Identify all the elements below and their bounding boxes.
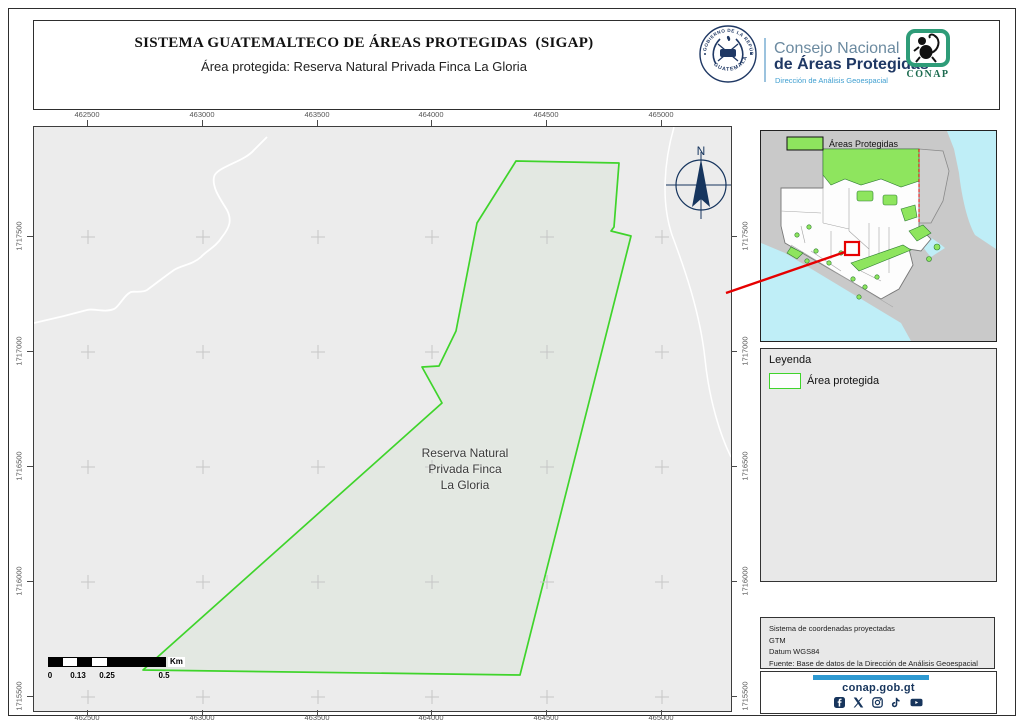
inset-legend-swatch bbox=[787, 137, 823, 150]
y-axis-label: 1717500 bbox=[15, 221, 24, 250]
y-axis-label: 1717500 bbox=[741, 221, 750, 250]
youtube-icon[interactable] bbox=[910, 697, 923, 708]
north-arrow-icon: N bbox=[666, 144, 731, 219]
y-axis-label: 1716500 bbox=[741, 451, 750, 480]
social-icons-row bbox=[761, 697, 996, 708]
conap-logo-icon: CONAP bbox=[903, 29, 953, 81]
x-axis-label: 464000 bbox=[418, 110, 443, 119]
scale-bar: Km 0 0.13 0.25 0.5 bbox=[48, 657, 208, 685]
x-axis-label: 462500 bbox=[74, 713, 99, 722]
main-map[interactable]: N Reserva Natural Privada Finca La Glori… bbox=[33, 126, 732, 712]
y-axis-label: 1716500 bbox=[15, 451, 24, 480]
meta-line: Datum WGS84 bbox=[769, 646, 986, 658]
x-axis-label: 464500 bbox=[533, 110, 558, 119]
x-axis-label: 463500 bbox=[304, 110, 329, 119]
legend-title: Leyenda bbox=[769, 354, 811, 366]
footer-panel: conap.gob.gt bbox=[760, 671, 997, 714]
x-axis-label: 463000 bbox=[189, 110, 214, 119]
tiktok-icon[interactable] bbox=[891, 697, 902, 708]
x-axis-label: 464000 bbox=[418, 713, 443, 722]
page-subtitle: Área protegida: Reserva Natural Privada … bbox=[34, 59, 694, 74]
inset-legend-label: Áreas Protegidas bbox=[829, 139, 899, 149]
x-axis-label: 465000 bbox=[648, 110, 673, 119]
scale-label-013: 0.13 bbox=[70, 671, 86, 680]
meta-line: Sistema de coordenadas proyectadas bbox=[769, 623, 986, 635]
x-axis-label: 463500 bbox=[304, 713, 329, 722]
logo-separator bbox=[764, 38, 766, 82]
scale-label-05: 0.5 bbox=[158, 671, 169, 680]
header: SISTEMA GUATEMALTECO DE ÁREAS PROTEGIDAS… bbox=[33, 20, 1000, 110]
map-canvas: N bbox=[34, 127, 731, 711]
x-axis-label: 465000 bbox=[648, 713, 673, 722]
meta-line: Fuente: Base de datos de la Dirección de… bbox=[769, 658, 986, 670]
y-axis-label: 1715500 bbox=[741, 681, 750, 710]
inset-map-canvas: Áreas Protegidas bbox=[761, 131, 996, 341]
meta-line: GTM bbox=[769, 635, 986, 647]
facebook-icon[interactable] bbox=[834, 697, 845, 708]
protected-area-label: Reserva Natural Privada Finca La Gloria bbox=[385, 445, 545, 494]
guatemala-government-seal-icon: GOBIERNO DE LA REPÚBLICA GUATEMALA bbox=[698, 24, 758, 84]
legend-item-label: Área protegida bbox=[807, 375, 879, 387]
website-link[interactable]: conap.gob.gt bbox=[761, 682, 996, 694]
y-axis-label: 1716000 bbox=[741, 566, 750, 595]
y-axis-label: 1715500 bbox=[15, 681, 24, 710]
instagram-icon[interactable] bbox=[872, 697, 883, 708]
footer-accent-bar bbox=[813, 675, 929, 680]
protected-area-polygon bbox=[143, 161, 631, 675]
scale-bar-unit: Km bbox=[168, 657, 185, 667]
protected-area-swatch bbox=[769, 373, 801, 389]
scale-bar-segments bbox=[48, 657, 166, 667]
x-axis-label: 463000 bbox=[189, 713, 214, 722]
x-icon[interactable] bbox=[853, 697, 864, 708]
org-subunit: Dirección de Análisis Geoespacial bbox=[775, 76, 888, 85]
x-axis-label: 464500 bbox=[533, 713, 558, 722]
y-axis-label: 1717000 bbox=[15, 336, 24, 365]
guatemala-overview-inset-map[interactable]: Áreas Protegidas bbox=[760, 130, 997, 342]
scale-label-0: 0 bbox=[48, 671, 52, 680]
coordinate-system-panel: Sistema de coordenadas proyectadas GTM D… bbox=[760, 617, 995, 669]
scale-label-025: 0.25 bbox=[99, 671, 115, 680]
y-axis-label: 1717000 bbox=[741, 336, 750, 365]
page-title: SISTEMA GUATEMALTECO DE ÁREAS PROTEGIDAS… bbox=[34, 35, 694, 52]
legend-panel: Leyenda Área protegida bbox=[760, 348, 997, 582]
x-axis-label: 462500 bbox=[74, 110, 99, 119]
sigap-map-page: SISTEMA GUATEMALTECO DE ÁREAS PROTEGIDAS… bbox=[0, 0, 1024, 724]
river-line bbox=[34, 137, 267, 323]
y-axis-label: 1716000 bbox=[15, 566, 24, 595]
conap-logo-text: CONAP bbox=[906, 69, 949, 80]
